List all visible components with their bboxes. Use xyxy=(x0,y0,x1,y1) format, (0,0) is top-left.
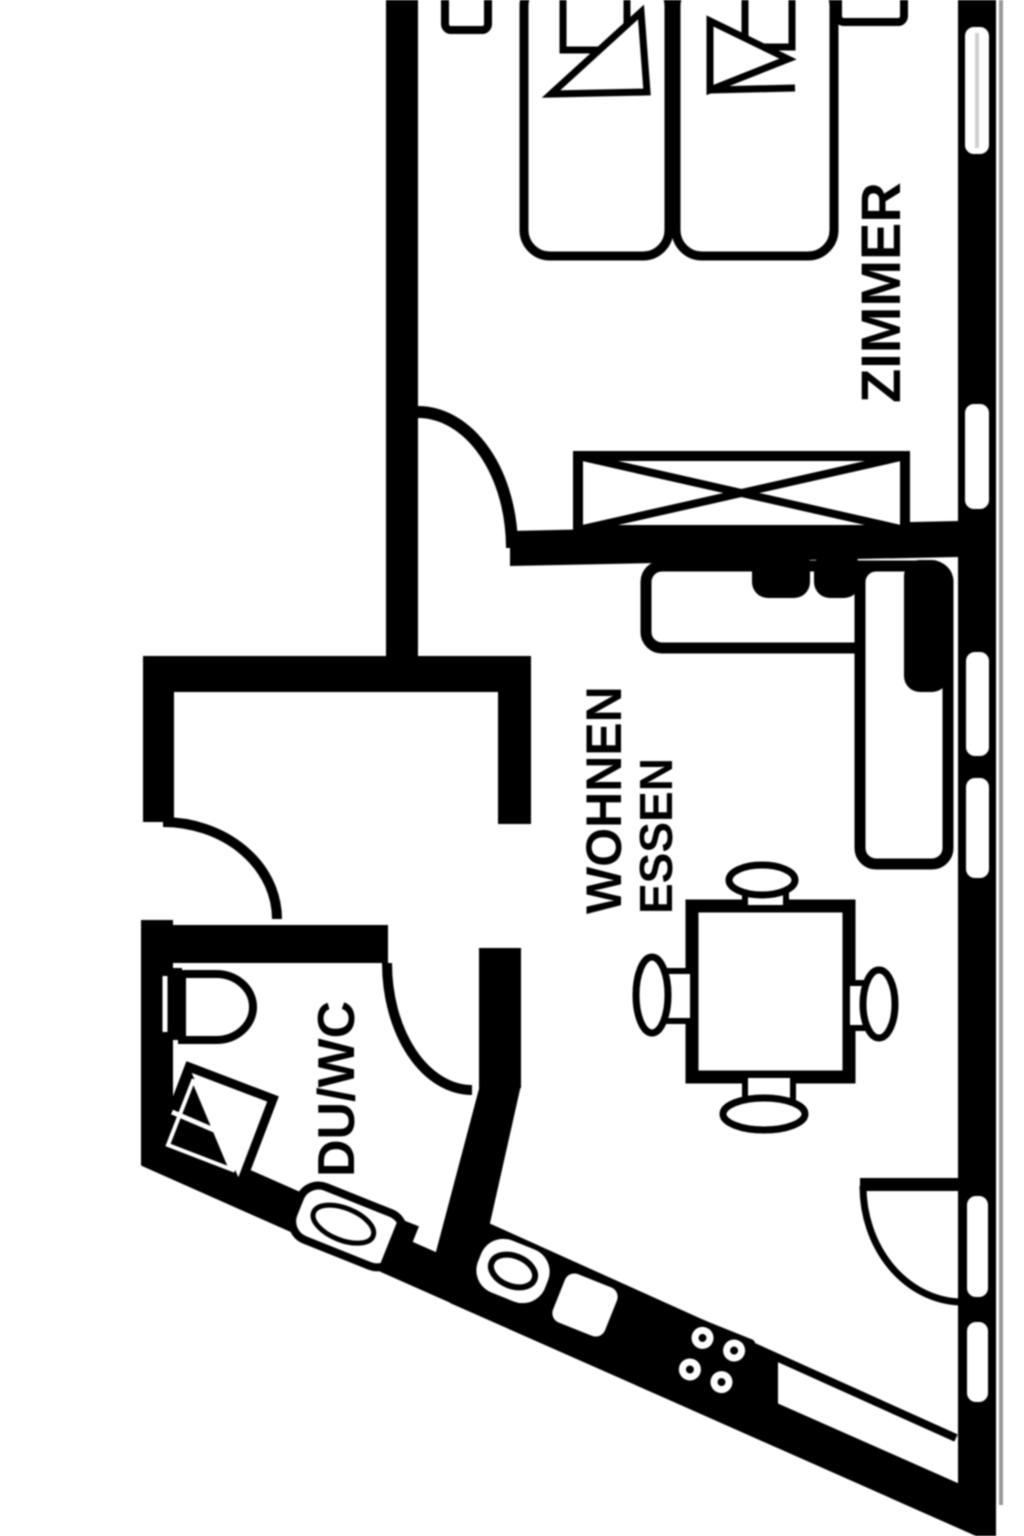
svg-text:WOHNEN: WOHNEN xyxy=(576,686,632,914)
svg-text:ESSEN: ESSEN xyxy=(630,758,682,914)
svg-text:ZIMMER: ZIMMER xyxy=(849,182,912,403)
svg-text:DU/WC: DU/WC xyxy=(308,1001,366,1177)
